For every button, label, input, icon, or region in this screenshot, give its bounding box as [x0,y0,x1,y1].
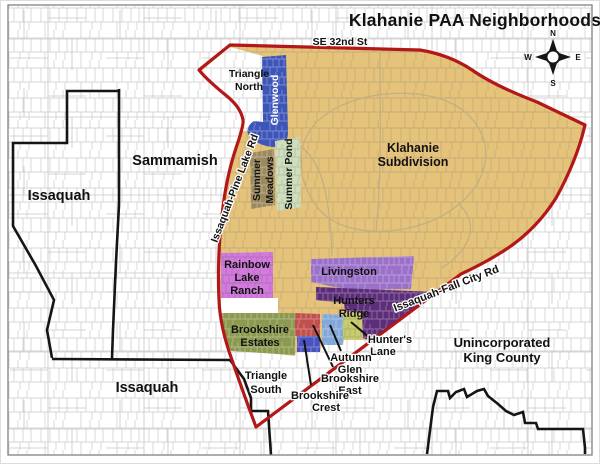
label-brookshire-east-1: Brookshire [321,373,379,385]
compass-hub [547,51,560,64]
brookshire-crest-parcels [297,336,320,352]
label-hunters-ridge-2: Ridge [339,308,370,320]
label-hunters-lane-1: Hunter's [368,334,412,346]
label-livingston: Livingston [321,266,377,278]
compass-label-e: E [575,53,581,62]
compass-label-n: N [550,29,556,38]
label-summer-pond: Summer Pond [283,138,295,209]
label-triangle-south-1: Triangle [245,370,287,382]
label-brookshire-crest-2: Crest [312,402,340,414]
label-summer-meadows-1: Summer [251,159,263,201]
area-label-unincorporated-1: Unincorporated [454,335,551,350]
label-glenwood: Glenwood [269,75,281,126]
white-gap [221,298,278,313]
road-label-se-32nd: SE 32nd St [313,36,368,48]
city-label-issaquah-nw: Issaquah [28,188,91,204]
label-brookshire-estates-1: Brookshire [231,324,289,336]
city-label-sammamish: Sammamish [132,153,217,169]
label-hunters-lane-2: Lane [370,346,396,358]
area-label-unincorporated-2: King County [463,350,541,365]
klahanie-map: Klahanie PAA Neighborhoods SE 32nd St Is… [0,0,600,464]
label-rainbow-2: Lake [234,272,259,284]
label-autumn-glen-1: Autumn [330,352,372,364]
label-klahanie-1: Klahanie [387,141,439,155]
label-summer-meadows-2: Meadows [264,156,276,203]
label-brookshire-crest-1: Brookshire [291,390,349,402]
compass-label-s: S [550,79,556,88]
label-rainbow-1: Rainbow [224,259,270,271]
label-klahanie-2: Subdivision [378,155,449,169]
label-triangle-north-2: North [235,81,263,93]
label-rainbow-3: Ranch [230,285,264,297]
label-triangle-south-2: South [250,384,281,396]
label-brookshire-estates-2: Estates [240,337,279,349]
map-page: Klahanie PAA Neighborhoods SE 32nd St Is… [0,0,600,464]
label-triangle-north-1: Triangle [229,68,269,80]
page-title: Klahanie PAA Neighborhoods [349,10,600,30]
compass-label-w: W [524,53,532,62]
city-label-issaquah-s: Issaquah [116,380,179,396]
label-hunters-ridge-1: Hunters [333,295,375,307]
